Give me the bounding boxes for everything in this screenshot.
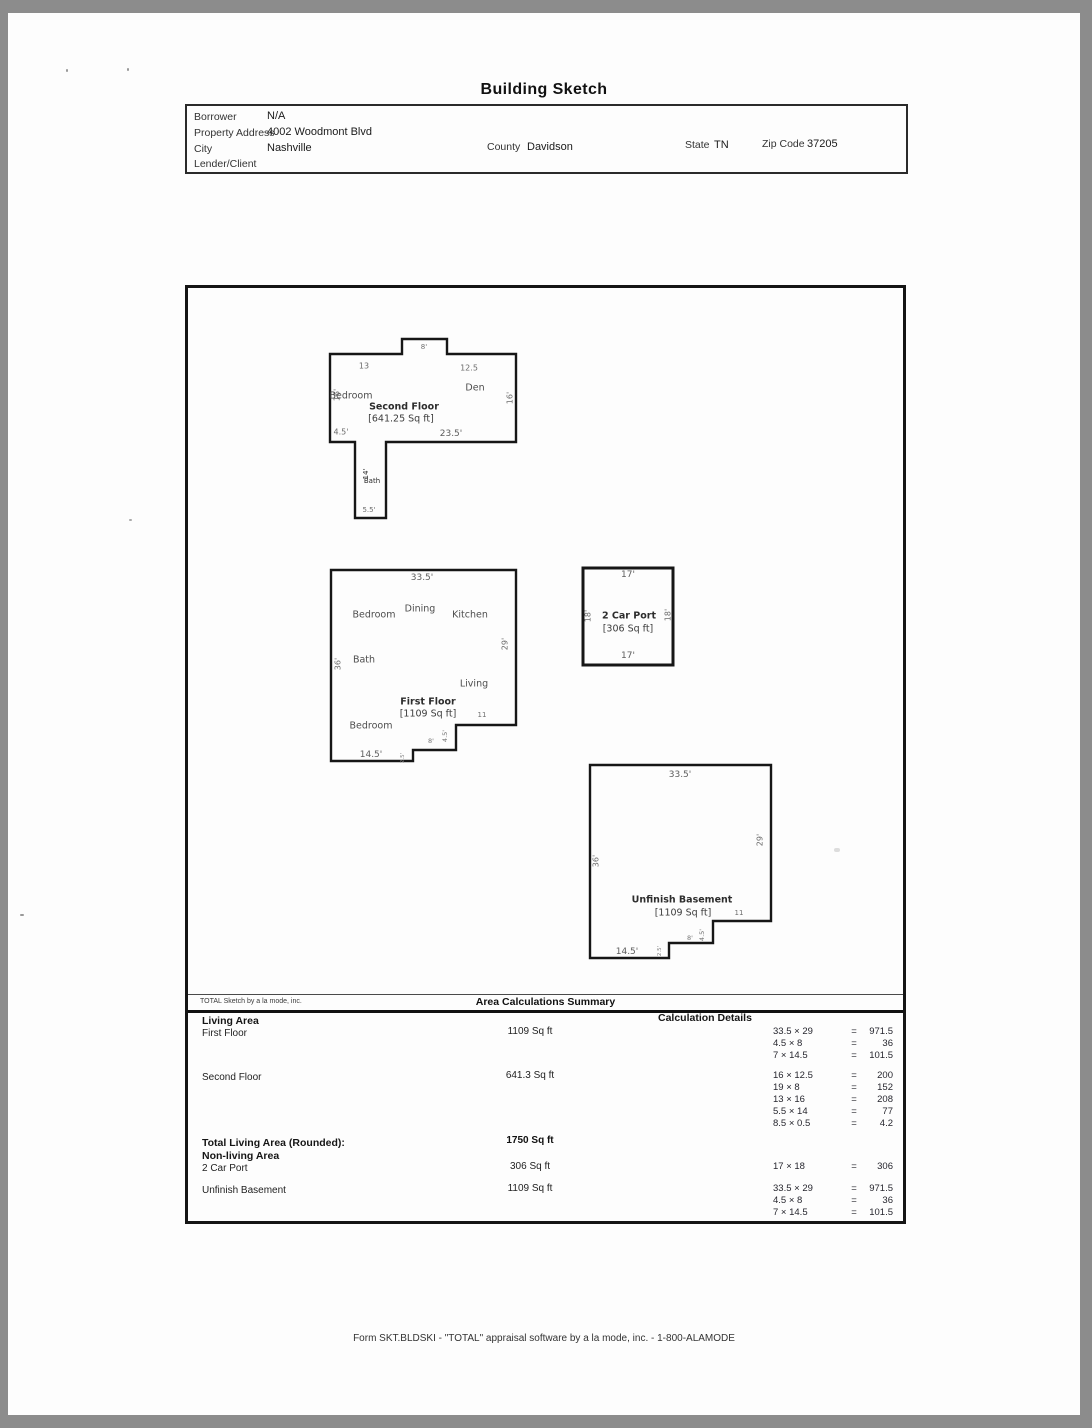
cp-area: [306 Sq ft]: [603, 624, 654, 635]
scan-artifact: [20, 914, 24, 916]
calc-line: 13 × 16=208: [773, 1094, 893, 1105]
ff-room-kitchen: Kitchen: [452, 610, 488, 621]
state-label: State: [685, 139, 710, 151]
ub-dim-step-rise2: 2.5': [657, 946, 663, 956]
ff-dim-step-run2: 8': [428, 737, 434, 745]
cp-dim-right: 18': [664, 609, 673, 621]
property-address-label: Property Address: [194, 127, 275, 139]
ub-dim-step-rise: 4.5': [698, 929, 706, 941]
cp-dim-bottom: 17': [621, 651, 635, 661]
living-area-label: Living Area: [202, 1015, 259, 1027]
ub-dim-step-run2: 8': [687, 934, 693, 942]
ff-room-bedroom-bottom: Bedroom: [350, 721, 393, 732]
summary-row-area: 306 Sq ft: [480, 1161, 580, 1172]
ff-dim-top: 33.5': [411, 573, 434, 583]
scan-artifact: [127, 68, 129, 71]
ub-dim-bottom: 14.5': [616, 947, 639, 957]
calculation-details-label: Calculation Details: [658, 1012, 752, 1024]
calc-line: 33.5 × 29=971.5: [773, 1183, 893, 1194]
calc-line: 5.5 × 14=77: [773, 1106, 893, 1117]
ff-dim-step-rise2: 2.5': [400, 753, 406, 763]
subject-info-table: Borrower N/A Property Address 4002 Woodm…: [185, 104, 908, 174]
sf-dim-top-right: 12.5: [460, 364, 478, 373]
calc-line: 7 × 14.5=101.5: [773, 1050, 893, 1061]
scan-artifact: [66, 69, 68, 72]
scanned-page-background: { "doc": { "title": "Building Sketch", "…: [0, 0, 1092, 1428]
ff-dim-step-rise: 4.5': [441, 730, 449, 742]
total-living-area-value: 1750 Sq ft: [480, 1135, 580, 1146]
ub-dim-left: 36': [592, 855, 601, 867]
calc-line: 4.5 × 8=36: [773, 1038, 893, 1049]
calc-line: 8.5 × 0.5=4.2: [773, 1118, 893, 1129]
summary-row-name: Unfinish Basement: [202, 1185, 286, 1196]
calc-line: 4.5 × 8=36: [773, 1195, 893, 1206]
second-floor-outline: [330, 339, 516, 518]
zip-code-value: 37205: [807, 138, 838, 150]
ff-dim-bottom: 14.5': [360, 750, 383, 760]
sf-floor-title: Second Floor: [369, 402, 439, 413]
summary-title: Area Calculations Summary: [188, 996, 903, 1008]
ff-dim-step-run: 11: [478, 711, 487, 719]
cp-dim-top: 17': [621, 570, 635, 580]
summary-row-name: Second Floor: [202, 1072, 261, 1083]
first-floor-outline: [331, 570, 516, 761]
summary-row-area: 641.3 Sq ft: [480, 1070, 580, 1081]
non-living-area-label: Non-living Area: [202, 1150, 279, 1162]
building-sketch-area: 13 8' 12.5 Den 16' 16' Bedroom Second Fl…: [185, 285, 906, 1224]
sf-dim-right: 16': [506, 392, 515, 404]
sf-floor-area: [641.25 Sq ft]: [368, 414, 434, 425]
summary-row-name: 2 Car Port: [202, 1163, 248, 1174]
page-title: Building Sketch: [481, 81, 608, 99]
property-address-value: 4002 Woodmont Blvd: [267, 126, 372, 138]
sf-room-bath: Bath: [364, 477, 380, 485]
cp-title: 2 Car Port: [602, 611, 656, 622]
ff-room-bath: Bath: [353, 655, 375, 666]
calc-line: 7 × 14.5=101.5: [773, 1207, 893, 1218]
sf-dim-bottom-left: 4.5': [334, 428, 349, 437]
ub-dim-right: 29': [756, 834, 765, 846]
sf-dim-wing-bottom: 5.5': [362, 506, 375, 514]
summary-row-area: 1109 Sq ft: [480, 1183, 580, 1194]
summary-row-name: First Floor: [202, 1028, 247, 1039]
sf-room-bedroom: Bedroom: [330, 391, 373, 402]
borrower-value: N/A: [267, 110, 285, 122]
ub-dim-top: 33.5': [669, 770, 692, 780]
ub-title: Unfinish Basement: [632, 895, 733, 906]
total-living-area-label: Total Living Area (Rounded):: [202, 1137, 345, 1149]
document-page: Building Sketch Borrower N/A Property Ad…: [8, 13, 1080, 1415]
ff-floor-title: First Floor: [400, 697, 455, 708]
sf-room-den: Den: [465, 383, 484, 394]
form-footer: Form SKT.BLDSKI - "TOTAL" appraisal soft…: [353, 1333, 735, 1344]
sf-dim-top-left: 13: [359, 362, 369, 371]
summary-row-area: 1109 Sq ft: [480, 1026, 580, 1037]
ff-floor-area: [1109 Sq ft]: [400, 709, 457, 720]
borrower-label: Borrower: [194, 111, 237, 123]
lender-client-label: Lender/Client: [194, 158, 256, 170]
cp-dim-left: 18': [584, 610, 593, 622]
calc-line: 19 × 8=152: [773, 1082, 893, 1093]
county-value: Davidson: [527, 141, 573, 153]
calc-line: 16 × 12.5=200: [773, 1070, 893, 1081]
calc-line: 17 × 18=306: [773, 1161, 893, 1172]
ff-room-dining: Dining: [405, 604, 436, 615]
ff-room-bedroom-top: Bedroom: [353, 610, 396, 621]
ub-area: [1109 Sq ft]: [655, 908, 712, 919]
calc-line: 33.5 × 29=971.5: [773, 1026, 893, 1037]
ub-dim-step-run: 11: [735, 909, 744, 917]
zip-code-label: Zip Code: [762, 138, 805, 150]
ff-dim-right: 29': [501, 638, 510, 650]
city-value: Nashville: [267, 142, 312, 154]
sf-dim-bottom: 23.5': [440, 429, 463, 439]
basement-outline: [590, 765, 771, 958]
city-label: City: [194, 143, 212, 155]
summary-title-rule: [188, 1010, 903, 1013]
summary-top-rule: [188, 994, 903, 995]
county-label: County: [487, 141, 520, 153]
sf-dim-bump: 8': [421, 343, 427, 351]
ff-room-living: Living: [460, 679, 488, 690]
floorplan-outlines: [188, 288, 903, 996]
state-value: TN: [714, 139, 729, 151]
scan-artifact: [129, 519, 132, 521]
ff-dim-left: 36': [334, 658, 343, 670]
